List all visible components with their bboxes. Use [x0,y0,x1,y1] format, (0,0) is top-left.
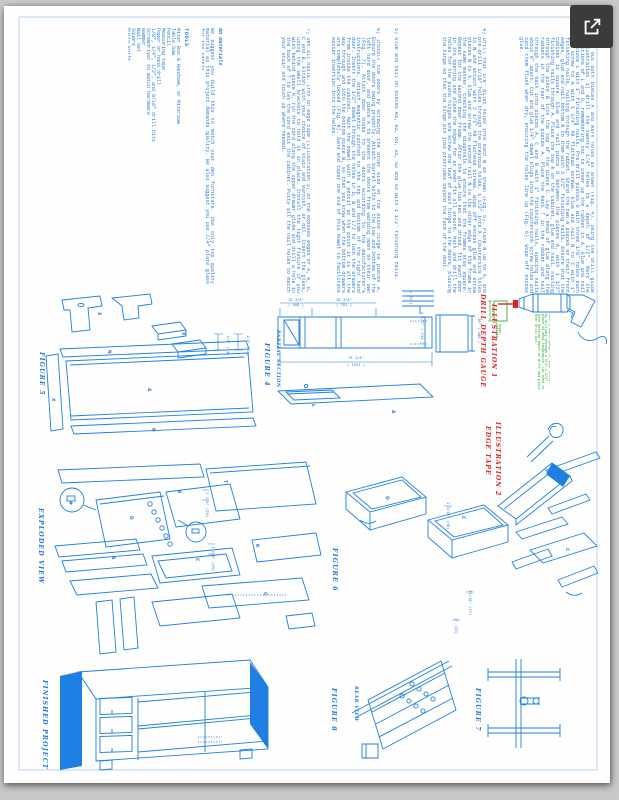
paragraph-4: 4) Drill four 1/8" pilot holes into each… [402,28,486,293]
tools-heading: TOOLS [183,28,189,47]
tool-item: Square [130,28,135,284]
open-in-new-icon [581,16,603,38]
tool-item: Screwdriver to match hardware [145,28,150,284]
materials-heading: On materials [217,28,223,65]
open-in-new-button[interactable] [570,5,613,48]
depth-desired-label: depth desired [493,324,501,346]
tool-item: Hammer [140,28,145,284]
tool-item: Putty knife [128,28,130,284]
viewer-canvas: { "viewer": { "background": "#c9c9c9", "… [0,0,619,800]
tool-item: Nail Set [135,28,140,284]
tool-item: Miter Box & Handsaw, or Mitersaw [175,28,180,284]
paragraph-6: 6) Install the doors by screwing the oth… [314,28,380,293]
tools-list: TOOLS Miter Box & Handsaw, or Mitersaw T… [128,28,198,284]
depth-gauge-note: Make a depth gauge for your drill - by d… [520,314,550,390]
paragraph-3: 3) Lay out both pieces A and mark holes … [488,28,594,293]
materials-text: We suggest you build this to match your … [202,28,214,284]
paragraph-7: 7) Set all nails. Iron on edge tape (Ill… [238,28,310,293]
materials-note: On materials We suggest you build this t… [202,28,232,284]
paragraph-5: 5) Glue and nail on pieces R1, R2, R3, S… [384,28,398,293]
